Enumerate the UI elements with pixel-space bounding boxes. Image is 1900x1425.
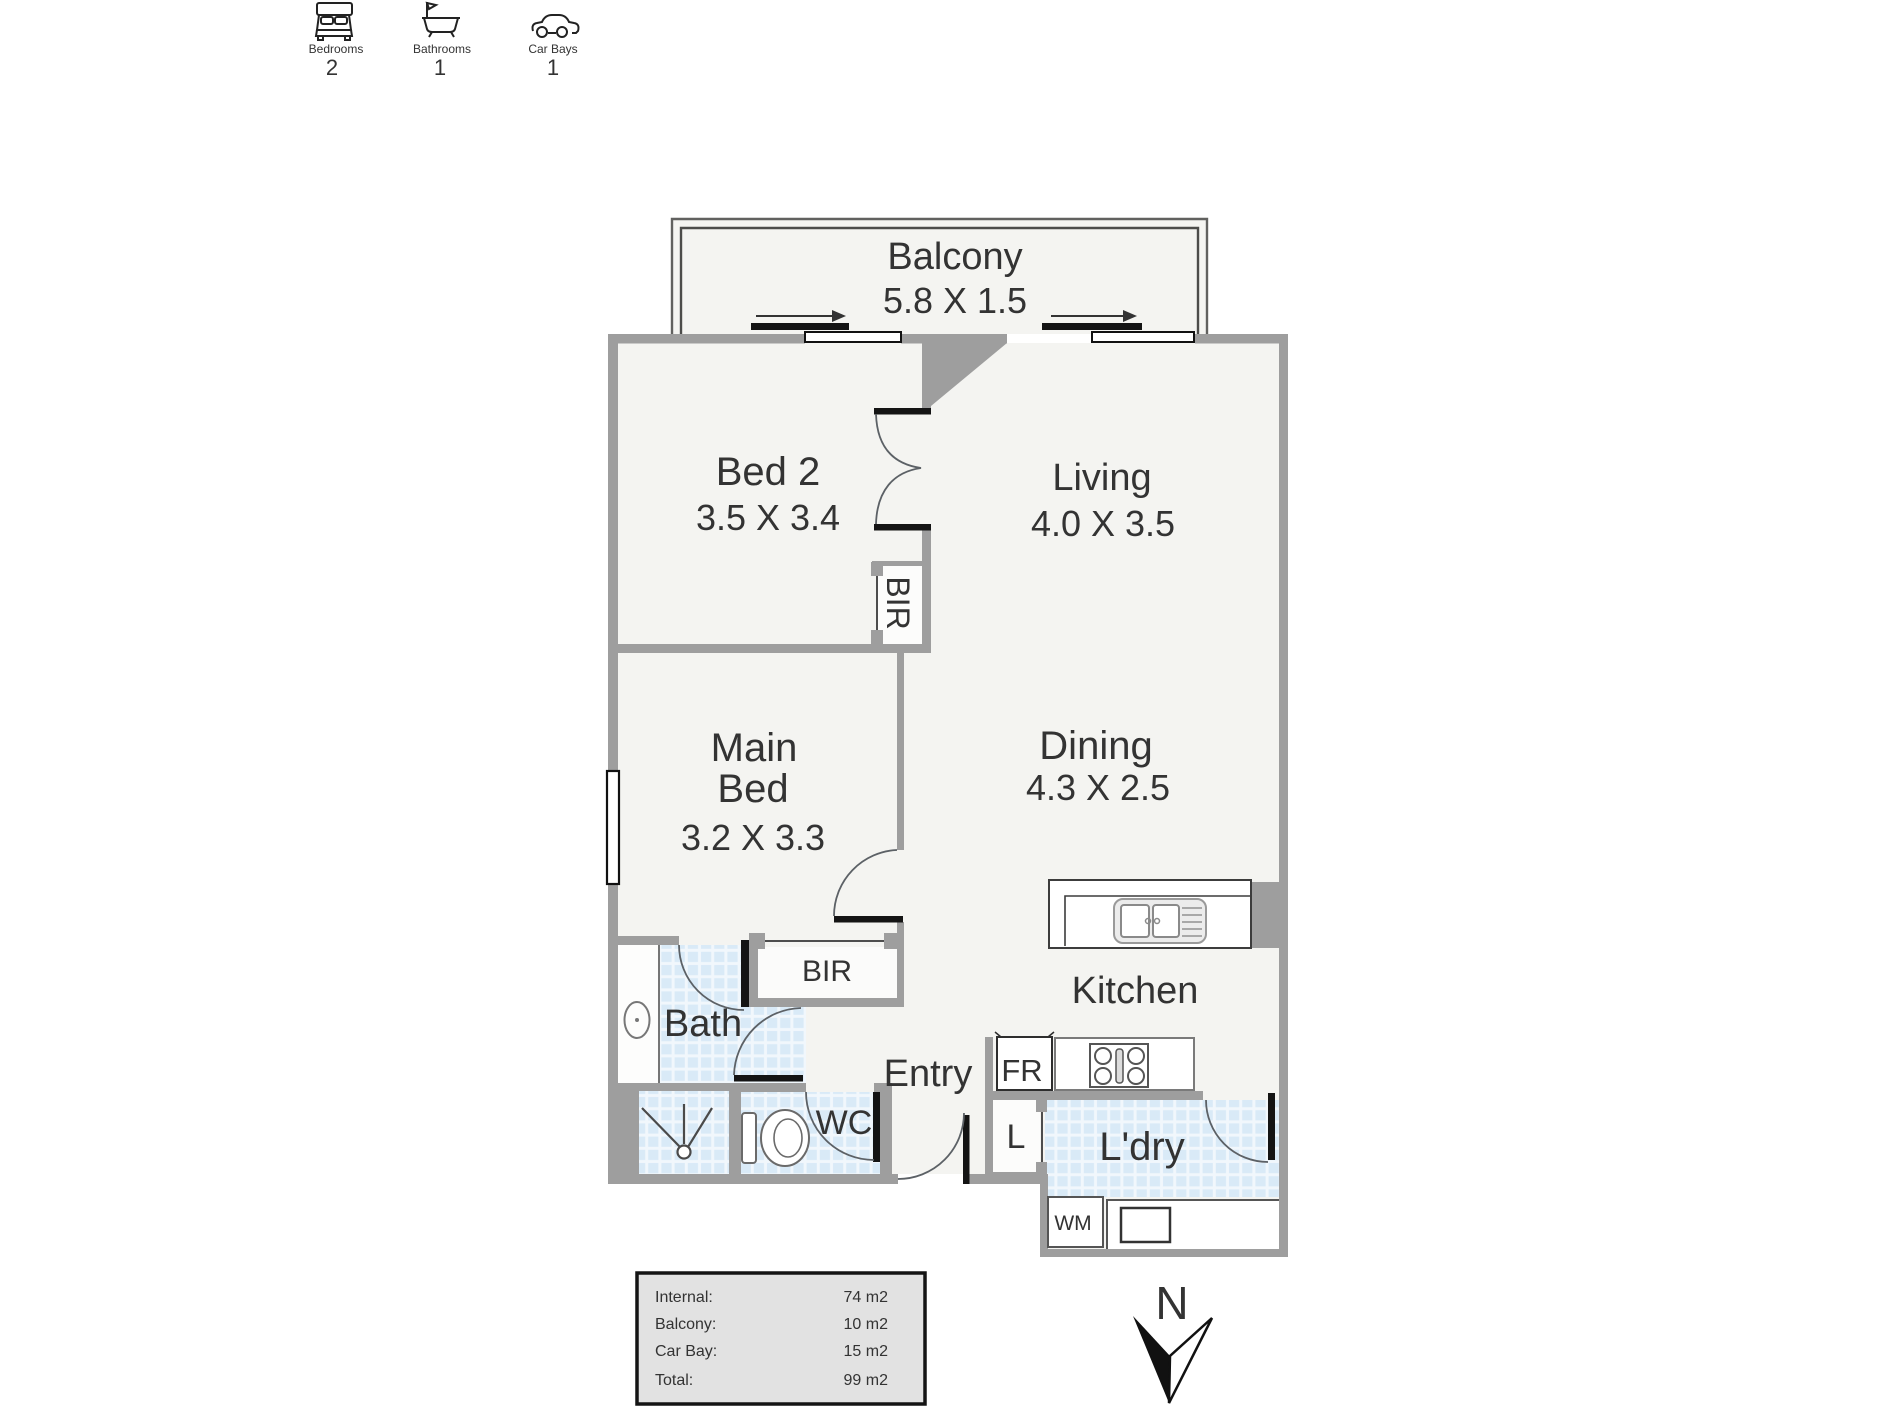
svg-text:L'dry: L'dry — [1099, 1125, 1184, 1169]
svg-text:Bath: Bath — [664, 1003, 742, 1045]
svg-text:N: N — [1155, 1277, 1188, 1329]
svg-text:Dining: Dining — [1039, 724, 1152, 768]
svg-text:Bathrooms: Bathrooms — [413, 42, 471, 56]
svg-text:Total:: Total: — [655, 1372, 693, 1389]
svg-text:Internal:: Internal: — [655, 1289, 713, 1306]
svg-text:Living: Living — [1052, 457, 1151, 499]
svg-text:Balcony:: Balcony: — [655, 1316, 716, 1333]
svg-text:Kitchen: Kitchen — [1072, 970, 1199, 1012]
svg-text:2: 2 — [326, 55, 338, 80]
svg-text:Car Bay:: Car Bay: — [655, 1343, 717, 1360]
svg-text:15 m2: 15 m2 — [844, 1343, 889, 1360]
svg-text:Entry: Entry — [884, 1053, 973, 1095]
svg-text:3.2 X 3.3: 3.2 X 3.3 — [681, 817, 825, 858]
svg-text:3.5 X 3.4: 3.5 X 3.4 — [696, 497, 840, 538]
svg-text:1: 1 — [434, 55, 446, 80]
svg-text:Balcony: Balcony — [887, 236, 1022, 278]
svg-text:L: L — [1007, 1118, 1026, 1156]
svg-text:74 m2: 74 m2 — [844, 1289, 889, 1306]
svg-text:99 m2: 99 m2 — [844, 1372, 889, 1389]
svg-text:BIR: BIR — [802, 955, 852, 988]
svg-text:10 m2: 10 m2 — [844, 1316, 889, 1333]
svg-text:FR: FR — [1001, 1053, 1042, 1088]
svg-text:Bed: Bed — [717, 767, 788, 811]
svg-text:5.8 X 1.5: 5.8 X 1.5 — [883, 280, 1027, 321]
svg-text:4.3 X 2.5: 4.3 X 2.5 — [1026, 767, 1170, 808]
svg-text:WC: WC — [816, 1104, 873, 1142]
svg-text:WM: WM — [1054, 1212, 1091, 1235]
svg-text:1: 1 — [547, 55, 559, 80]
svg-text:BIR: BIR — [880, 576, 916, 629]
svg-text:Car Bays: Car Bays — [528, 42, 577, 56]
svg-text:Main: Main — [711, 726, 798, 770]
svg-text:Bedrooms: Bedrooms — [309, 42, 364, 56]
svg-text:4.0 X 3.5: 4.0 X 3.5 — [1031, 503, 1175, 544]
svg-text:Bed 2: Bed 2 — [716, 450, 821, 494]
